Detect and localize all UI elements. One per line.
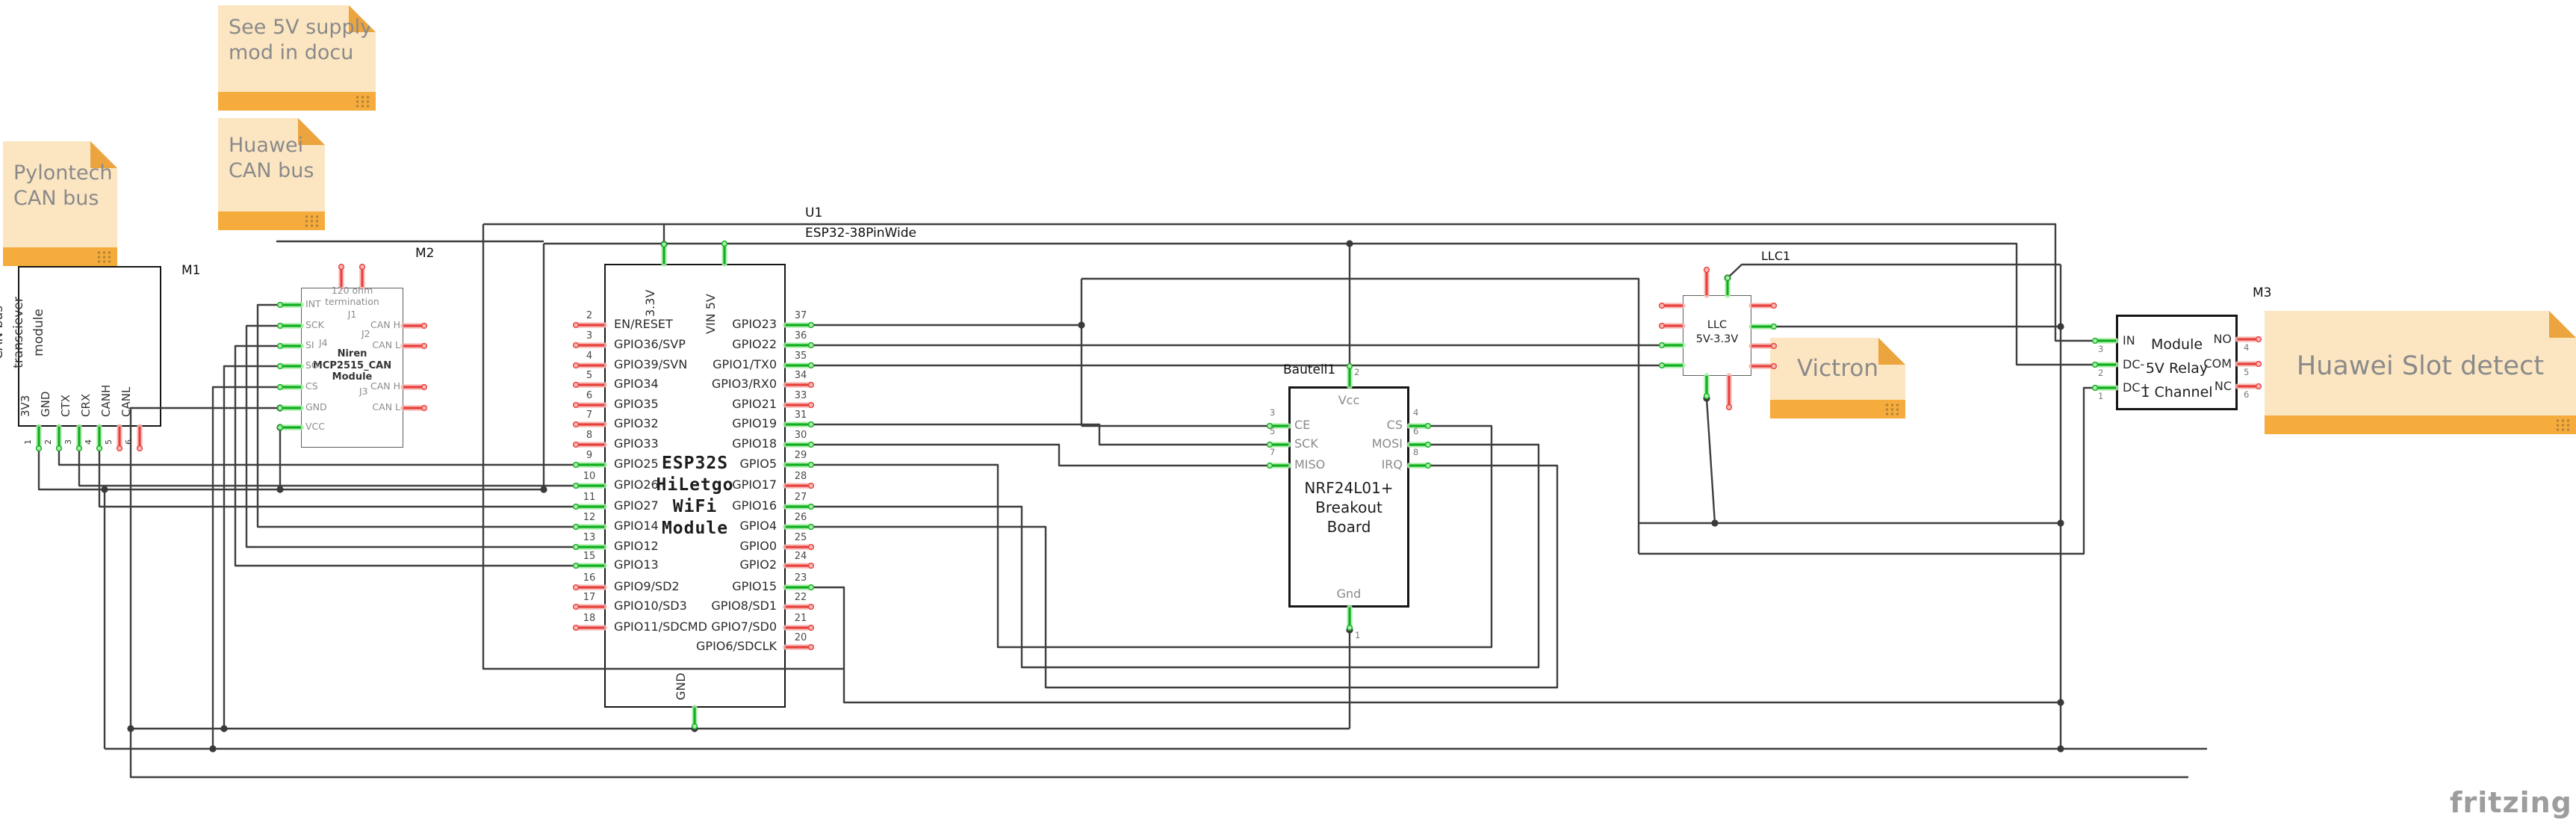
esp32-pin-GPIO36/SVP[interactable] <box>574 343 604 348</box>
nrf-pin-label: CS <box>1337 418 1403 433</box>
m2-pin-CANH[interactable] <box>403 324 426 329</box>
esp32-pin-3v3[interactable] <box>662 242 667 264</box>
nrf-pin-label: IRQ <box>1337 458 1403 472</box>
llc-pin-right-4[interactable] <box>1751 364 1776 369</box>
llc-pin-bottom-1[interactable] <box>1704 376 1710 398</box>
esp32-top-label-3v3: 3.3V <box>643 290 657 317</box>
esp32-pin-label: GPIO17 <box>681 478 777 492</box>
esp32-pin-num: 7 <box>576 410 603 421</box>
esp32-top-label-vin5v: VIN 5V <box>704 294 718 334</box>
llc-pin-left-1[interactable] <box>1660 303 1683 309</box>
esp32-pin-num: 21 <box>787 613 814 624</box>
nrf-pin-Gnd[interactable] <box>1347 608 1353 630</box>
m1-pin-num: 3 <box>63 439 73 445</box>
m2-pin-label: SCK <box>305 320 324 331</box>
junction-dot <box>2057 745 2064 752</box>
esp32-pin-label: GPIO13 <box>614 558 659 572</box>
junction-dot <box>101 486 108 492</box>
relay-pin-num: 4 <box>2244 343 2249 353</box>
m2-pin-label: CAN H <box>348 381 400 392</box>
m1-pin-num: 1 <box>23 439 33 445</box>
esp32-pin-label: GPIO22 <box>681 338 777 352</box>
relay-pin-label: DC+ <box>2123 381 2150 395</box>
relay-pin-label: NC <box>2166 380 2232 394</box>
ref-bauteil1: Bauteil1 <box>1283 363 1335 378</box>
esp32-pin-num: 30 <box>787 430 814 441</box>
m1-pin-GND[interactable] <box>57 427 62 451</box>
wire[interactable] <box>235 346 576 566</box>
relay-pin-num: 6 <box>2244 390 2249 400</box>
nrf-pin-num: 6 <box>1413 427 1418 436</box>
junction-dot <box>2057 519 2064 526</box>
esp32-pin-GPIO16[interactable] <box>786 504 813 510</box>
esp32-pin-label: GPIO15 <box>681 580 777 594</box>
junction-dot <box>209 745 216 752</box>
llc-pin-top-2[interactable] <box>1725 276 1731 295</box>
esp32-pin-label: GPIO0 <box>681 540 777 554</box>
nrf-pin-num: 8 <box>1413 448 1418 457</box>
m2-pin-GND[interactable] <box>278 406 301 411</box>
m1-pin-num: 2 <box>43 439 53 445</box>
esp32-pin-GPIO9/SD2[interactable] <box>574 585 604 590</box>
esp32-pin-num: 11 <box>576 492 603 503</box>
esp32-pin-num: 25 <box>787 532 814 543</box>
esp32-pin-vin5v[interactable] <box>722 241 727 264</box>
ref-llc1: LLC1 <box>1761 250 1790 264</box>
esp32-pin-GPIO13[interactable] <box>574 563 604 569</box>
nrf-pin-num: 4 <box>1413 408 1418 418</box>
esp32-pin-GPIO5[interactable] <box>786 463 813 468</box>
esp32-pin-num: 36 <box>787 330 814 342</box>
esp32-pin-GPIO23[interactable] <box>786 323 813 328</box>
esp32-pin-GPIO25[interactable] <box>574 463 604 468</box>
esp32-pin-GPIO12[interactable] <box>574 545 604 550</box>
relay-pin-num: 5 <box>2244 368 2249 377</box>
nrf-pin-label: SCK <box>1294 437 1318 451</box>
m2-termination-pin-2[interactable] <box>360 265 365 287</box>
wire[interactable] <box>258 305 576 527</box>
wire[interactable] <box>79 448 576 486</box>
relay-pin-DC-[interactable] <box>2093 362 2116 368</box>
wire[interactable] <box>1707 398 1715 523</box>
m2-pin-label: INT <box>305 299 321 310</box>
esp32-pin-GPIO3/RX0[interactable] <box>786 383 813 388</box>
nrf-pin-label: CE <box>1294 418 1310 433</box>
m2-pin-CS[interactable] <box>278 385 301 390</box>
esp32-pin-GPIO14[interactable] <box>574 525 604 530</box>
esp32-pin-num: 16 <box>576 572 603 584</box>
esp32-pin-num: 12 <box>576 512 603 523</box>
fritzing-logo: fritzing <box>2450 786 2572 819</box>
esp32-pin-num: 20 <box>787 632 814 643</box>
m1-pin-label-GND: GND <box>39 392 52 417</box>
m1-pin-num: 6 <box>124 439 134 445</box>
nrf-pin-num: 5 <box>1270 427 1275 436</box>
esp32-pin-num: 34 <box>787 370 814 381</box>
junction-dot <box>1711 519 1718 526</box>
llc-label: LLC 5V-3.3V <box>1683 318 1751 347</box>
nrf-pin-MISO[interactable] <box>1267 463 1288 469</box>
ref-m2: M2 <box>415 247 434 262</box>
junction-dot <box>540 486 547 492</box>
esp32-pin-num: 15 <box>576 551 603 562</box>
esp32-pin-label: GPIO2 <box>681 558 777 572</box>
esp32-pin-label: GPIO9/SD2 <box>614 580 680 594</box>
esp32-pin-gnd[interactable] <box>692 708 698 729</box>
esp32-pin-GPIO27[interactable] <box>574 504 604 510</box>
m1-pin-label-CTX: CTX <box>59 395 72 417</box>
esp32-pin-label: EN/RESET <box>614 318 673 332</box>
nrf-pin-label: MISO <box>1294 458 1325 472</box>
wire[interactable] <box>844 669 2061 702</box>
esp32-pin-num: 26 <box>787 512 814 523</box>
esp32-pin-num: 5 <box>576 370 603 381</box>
esp32-pin-EN/RESET[interactable] <box>574 323 604 328</box>
nrf-pin-num: 7 <box>1270 448 1275 457</box>
wire[interactable] <box>811 445 1270 466</box>
esp32-pin-num: 22 <box>787 592 814 603</box>
esp32-pin-GPIO0[interactable] <box>786 545 813 550</box>
esp32-pin-label: GPIO6/SDCLK <box>681 640 777 654</box>
esp32-pin-GPIO19[interactable] <box>786 422 813 427</box>
relay-pin-NO[interactable] <box>2238 337 2261 342</box>
esp32-pin-GPIO33[interactable] <box>574 442 604 448</box>
esp32-pin-num: 28 <box>787 471 814 482</box>
esp32-pin-label: GPIO16 <box>681 499 777 513</box>
relay-pin-num: 3 <box>2098 344 2103 354</box>
esp32-pin-label: GPIO21 <box>681 398 777 412</box>
esp32-pin-label: GPIO35 <box>614 398 659 412</box>
m1-pin-label-3V3: 3V3 <box>19 395 32 417</box>
relay-pin-IN[interactable] <box>2093 339 2116 344</box>
m1-pin-3V3[interactable] <box>37 427 42 451</box>
esp32-pin-label: GPIO19 <box>681 417 777 431</box>
esp32-pin-GPIO10/SD3[interactable] <box>574 605 604 610</box>
m2-pin-label: CAN H <box>348 320 400 331</box>
llc-pin-bottom-2[interactable] <box>1727 376 1732 410</box>
m2-pin-label: CAN L <box>348 402 400 413</box>
m2-pin-label: CAN L <box>348 340 400 351</box>
llc-pin-left-3[interactable] <box>1660 343 1683 348</box>
esp32-pin-GPIO22[interactable] <box>786 343 813 348</box>
m1-pin-num: 5 <box>104 439 114 445</box>
m2-pin-label: SO <box>305 360 319 371</box>
esp32-pin-num: 2 <box>576 310 603 321</box>
nrf-pin-label: Vcc <box>1288 394 1409 408</box>
esp32-pin-GPIO15[interactable] <box>786 585 813 590</box>
m1-title-text: SN65HVD230 CAN bus transciever module <box>0 276 49 389</box>
esp32-pin-num: 13 <box>576 532 603 543</box>
nrf-pin-label: MOSI <box>1337 437 1403 451</box>
m1-pin-CTX[interactable] <box>77 427 82 451</box>
esp32-pin-num: 24 <box>787 551 814 562</box>
relay-pin-label: NO <box>2166 333 2232 347</box>
esp32-pin-num: 10 <box>576 471 603 482</box>
relay-pin-num: 2 <box>2098 368 2103 378</box>
esp32-pin-num: 9 <box>576 450 603 461</box>
m2-pin-label: CS <box>305 381 318 392</box>
llc-pin-right-1[interactable] <box>1751 303 1776 309</box>
relay-pin-num: 1 <box>2098 392 2103 401</box>
schematic-canvas: See 5V supply mod in docu Huawei CAN bus… <box>0 0 2576 825</box>
esp32-pin-num: 29 <box>787 450 814 461</box>
esp32-pin-GPIO8/SD1[interactable] <box>786 605 813 610</box>
esp32-pin-label: GPIO3/RX0 <box>681 377 777 392</box>
m1-pin-num: 4 <box>84 439 93 445</box>
esp32-pin-label: GPIO7/SD0 <box>681 620 777 634</box>
wire[interactable] <box>811 445 1539 667</box>
esp32-pin-label: GPIO1/TX0 <box>681 358 777 372</box>
esp32-pin-label: GPIO36/SVP <box>614 338 686 352</box>
wire[interactable] <box>246 326 576 547</box>
m2-pin-CANH[interactable] <box>403 385 426 390</box>
llc-pin-right-3[interactable] <box>1751 344 1776 349</box>
esp32-pin-GPIO17[interactable] <box>786 483 813 489</box>
part-esp32: ESP32-38PinWide <box>805 226 916 241</box>
m1-pin-label-CRX: CRX <box>79 394 93 417</box>
esp32-pin-label: GPIO33 <box>614 437 659 451</box>
esp32-pin-num: 37 <box>787 310 814 321</box>
llc-pin-left-4[interactable] <box>1660 363 1683 368</box>
nrf-pin-num: 2 <box>1354 368 1359 377</box>
junction-dot <box>1346 240 1353 247</box>
relay-pin-COM[interactable] <box>2238 362 2261 367</box>
esp32-pin-num: 4 <box>576 350 603 362</box>
m1-pin-CRX[interactable] <box>97 427 102 451</box>
relay-pin-label: IN <box>2123 334 2135 348</box>
esp32-pin-GPIO21[interactable] <box>786 403 813 408</box>
esp32-pin-num: 27 <box>787 492 814 503</box>
nrf-pin-Vcc[interactable] <box>1347 364 1353 386</box>
junction-dot <box>1078 321 1084 328</box>
esp32-pin-label: GPIO18 <box>681 437 777 451</box>
esp32-pin-label: GPIO5 <box>681 457 777 472</box>
m2-pin-VCC[interactable] <box>278 425 301 430</box>
esp32-pin-num: 35 <box>787 350 814 362</box>
esp32-pin-label: GPIO14 <box>614 519 659 534</box>
m1-pin-label-CANH: CANH <box>99 385 113 417</box>
junction-dot <box>2057 323 2064 330</box>
llc-pin-left-2[interactable] <box>1660 324 1683 329</box>
ref-m1: M1 <box>181 264 200 279</box>
esp32-pin-num: 33 <box>787 390 814 401</box>
esp32-pin-num: 18 <box>576 613 603 624</box>
esp32-pin-num: 8 <box>576 430 603 441</box>
m2-pin-INT[interactable] <box>278 303 301 308</box>
esp32-pin-GPIO34[interactable] <box>574 383 604 388</box>
m2-pin-SI[interactable] <box>278 344 301 349</box>
nrf-pin-num: 3 <box>1270 408 1275 418</box>
m2-pin-label: VCC <box>305 421 325 433</box>
relay-pin-label: DC- <box>2123 358 2144 372</box>
esp32-pin-label: GPIO34 <box>614 377 659 392</box>
esp32-pin-GPIO6/SDCLK[interactable] <box>786 645 813 650</box>
m2-jumper-j4: J4 <box>319 338 328 349</box>
esp32-pin-label: GPIO23 <box>681 318 777 332</box>
m1-pin-label-CANL: CANL <box>120 387 133 417</box>
esp32-pin-GPIO11/SDCMD[interactable] <box>574 625 604 631</box>
esp32-pin-GPIO2[interactable] <box>786 563 813 569</box>
junction-dot <box>276 486 283 492</box>
esp32-pin-GPIO18[interactable] <box>786 442 813 448</box>
wire[interactable] <box>131 408 2188 777</box>
wire[interactable] <box>811 466 1557 687</box>
esp32-pin-label: GPIO8/SD1 <box>681 599 777 614</box>
m2-pin-SCK[interactable] <box>278 324 301 329</box>
esp32-pin-num: 23 <box>787 572 814 584</box>
junction-dot <box>220 725 227 732</box>
esp32-pin-GPIO4[interactable] <box>786 525 813 530</box>
junction-dot <box>127 725 134 732</box>
esp32-bottom-label-gnd: GND <box>674 673 688 700</box>
esp32-pin-num: 17 <box>576 592 603 603</box>
esp32-pin-num: 6 <box>576 390 603 401</box>
m1-pin-CANH[interactable] <box>117 427 122 451</box>
esp32-pin-label: GPIO12 <box>614 540 659 554</box>
esp32-pin-num: 3 <box>576 330 603 342</box>
m1-pin-CANL[interactable] <box>137 427 143 451</box>
esp32-pin-GPIO26[interactable] <box>574 483 604 489</box>
esp32-pin-GPIO32[interactable] <box>574 422 604 427</box>
m2-pin-CANL[interactable] <box>403 406 426 411</box>
esp32-pin-label: GPIO27 <box>614 499 659 513</box>
esp32-pin-GPIO7/SD0[interactable] <box>786 625 813 631</box>
m2-pin-label: GND <box>305 402 327 413</box>
nrf-pin-label: Gnd <box>1288 587 1409 602</box>
esp32-pin-label: GPIO39/SVN <box>614 358 687 372</box>
esp32-pin-label: GPIO10/SD3 <box>614 599 687 614</box>
llc-pin-right-2[interactable] <box>1751 324 1776 330</box>
nrf-pin-num: 1 <box>1355 631 1360 640</box>
m2-pin-label: SI <box>305 340 314 351</box>
esp32-pin-GPIO35[interactable] <box>574 403 604 408</box>
esp32-pin-label: GPIO32 <box>614 417 659 431</box>
nrf-center-text: NRF24L01+ Breakout Board <box>1288 478 1409 537</box>
nrf-pin-IRQ[interactable] <box>1409 463 1430 469</box>
relay-pin-DC+[interactable] <box>2093 386 2116 391</box>
wire[interactable] <box>59 448 576 465</box>
wire[interactable] <box>811 424 1270 445</box>
relay-pin-NC[interactable] <box>2238 384 2261 389</box>
esp32-pin-GPIO39/SVN[interactable] <box>574 363 604 368</box>
junction-dot <box>2057 699 2064 705</box>
m2-pin-SO[interactable] <box>278 364 301 369</box>
ref-u1: U1 <box>805 206 822 221</box>
m2-pin-CANL[interactable] <box>403 344 426 349</box>
esp32-pin-label: GPIO26 <box>614 478 659 492</box>
esp32-pin-label: GPIO25 <box>614 457 659 472</box>
m2-termination-pin-1[interactable] <box>339 265 344 287</box>
llc-pin-top-1[interactable] <box>1704 268 1710 295</box>
esp32-pin-label: GPIO4 <box>681 519 777 534</box>
esp32-pin-GPIO1/TX0[interactable] <box>786 363 813 368</box>
ref-m3: M3 <box>2253 286 2271 301</box>
wire[interactable] <box>99 448 576 507</box>
esp32-pin-num: 31 <box>787 410 814 421</box>
wire[interactable] <box>39 448 544 489</box>
wire[interactable] <box>1728 265 2061 278</box>
relay-pin-label: COM <box>2166 357 2232 371</box>
